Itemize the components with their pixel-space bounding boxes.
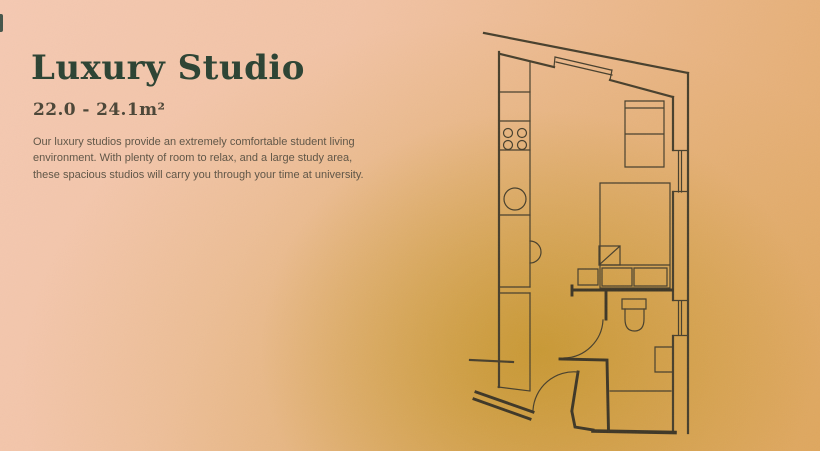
entry-door (533, 372, 578, 410)
description-line: environment. With plenty of room to rela… (33, 150, 373, 166)
edge-accent-mark (0, 14, 3, 32)
studio-floor-plan (460, 0, 820, 451)
pillows (602, 268, 667, 286)
kitchen-sink (504, 188, 526, 210)
right-window-upper (673, 151, 688, 193)
bathroom-walls (560, 359, 675, 433)
right-window-lower (673, 301, 688, 336)
duvet-fold (599, 246, 620, 265)
description-line: these spacious studios will carry you th… (33, 167, 373, 183)
exterior-walls (484, 33, 688, 433)
bed (600, 183, 670, 288)
kitchen-hob (504, 129, 527, 150)
page-title: Luxury Studio (31, 48, 305, 88)
kitchen-counter (499, 62, 541, 293)
bathroom-door (564, 320, 603, 358)
wash-basin (655, 347, 672, 372)
area-range: 22.0 - 24.1m² (33, 100, 165, 120)
description-line: Our luxury studios provide an extremely … (33, 134, 373, 150)
luxury-studio-hero: Luxury Studio 22.0 - 24.1m² Our luxury s… (0, 0, 820, 451)
description: Our luxury studios provide an extremely … (33, 134, 373, 183)
toilet (622, 299, 646, 331)
top-window (554, 57, 612, 80)
desk (625, 101, 664, 167)
bedside-shelf (578, 269, 598, 285)
